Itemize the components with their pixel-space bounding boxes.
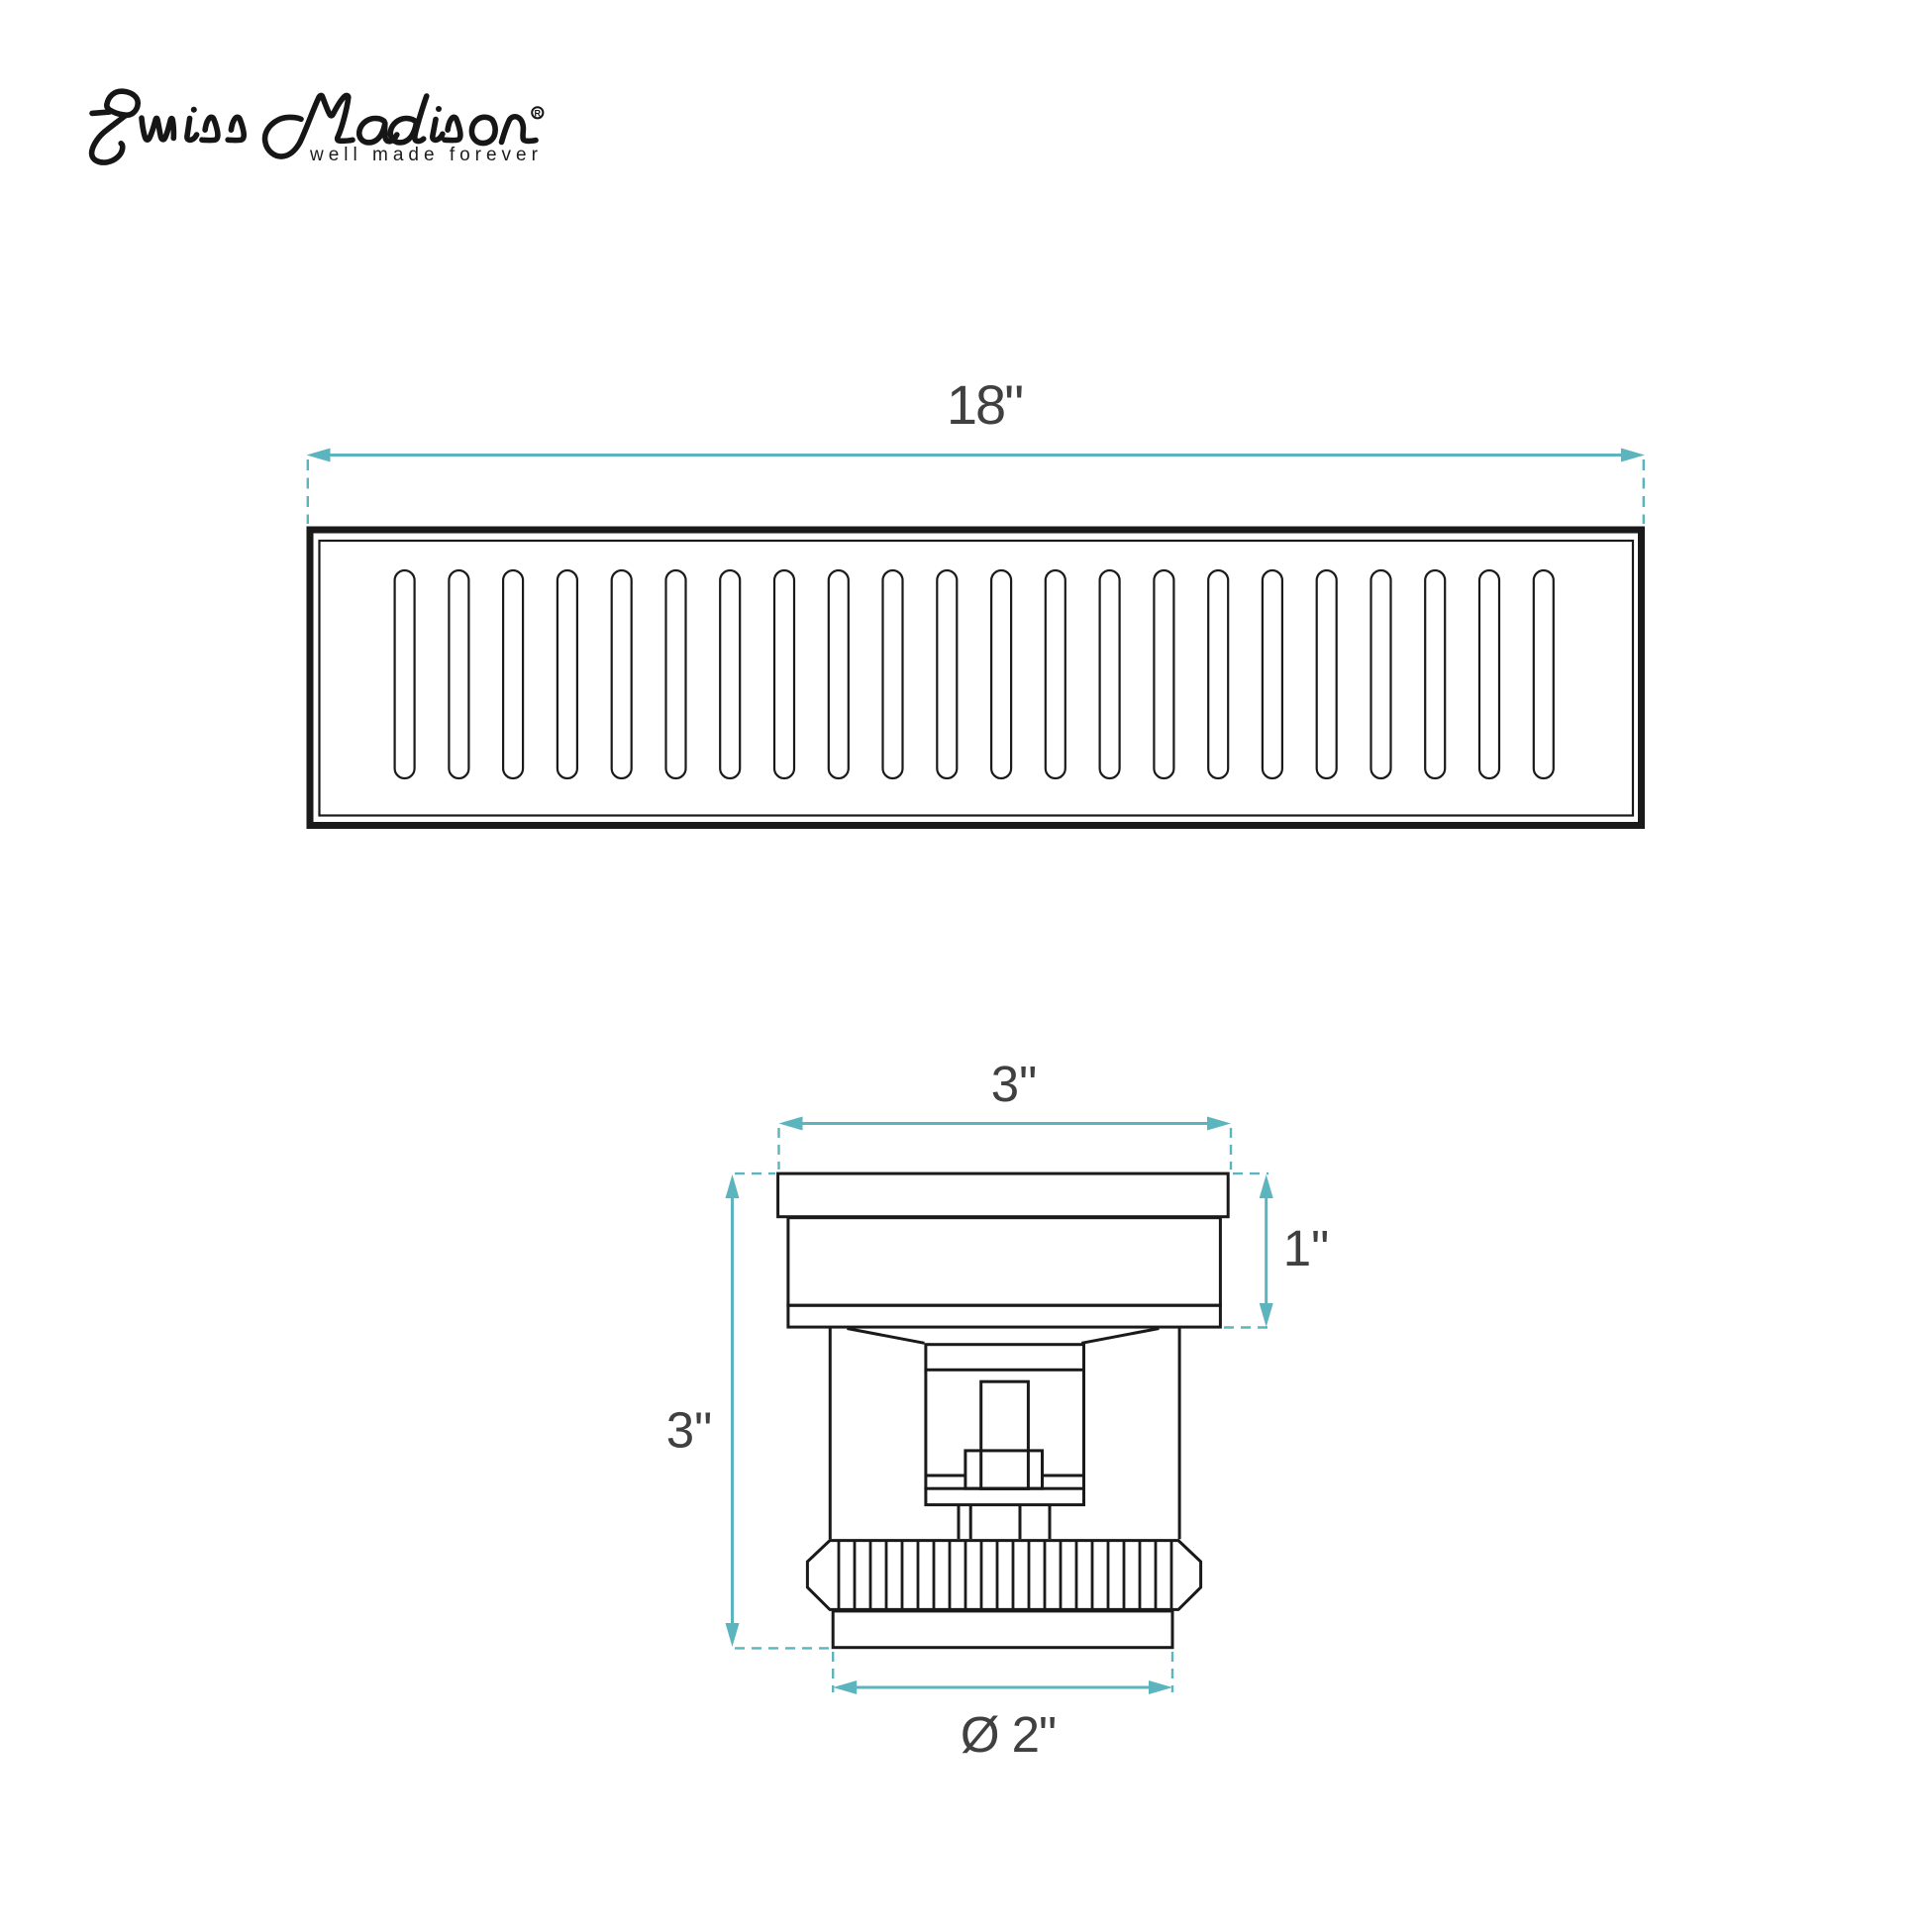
svg-text:well made forever: well made forever — [309, 145, 543, 165]
svg-text:R: R — [535, 109, 542, 119]
svg-text:3": 3" — [991, 1056, 1037, 1112]
svg-text:1": 1" — [1283, 1220, 1329, 1276]
svg-text:3": 3" — [666, 1402, 712, 1459]
svg-text:18": 18" — [947, 373, 1022, 436]
svg-text:Ø 2": Ø 2" — [961, 1706, 1056, 1763]
